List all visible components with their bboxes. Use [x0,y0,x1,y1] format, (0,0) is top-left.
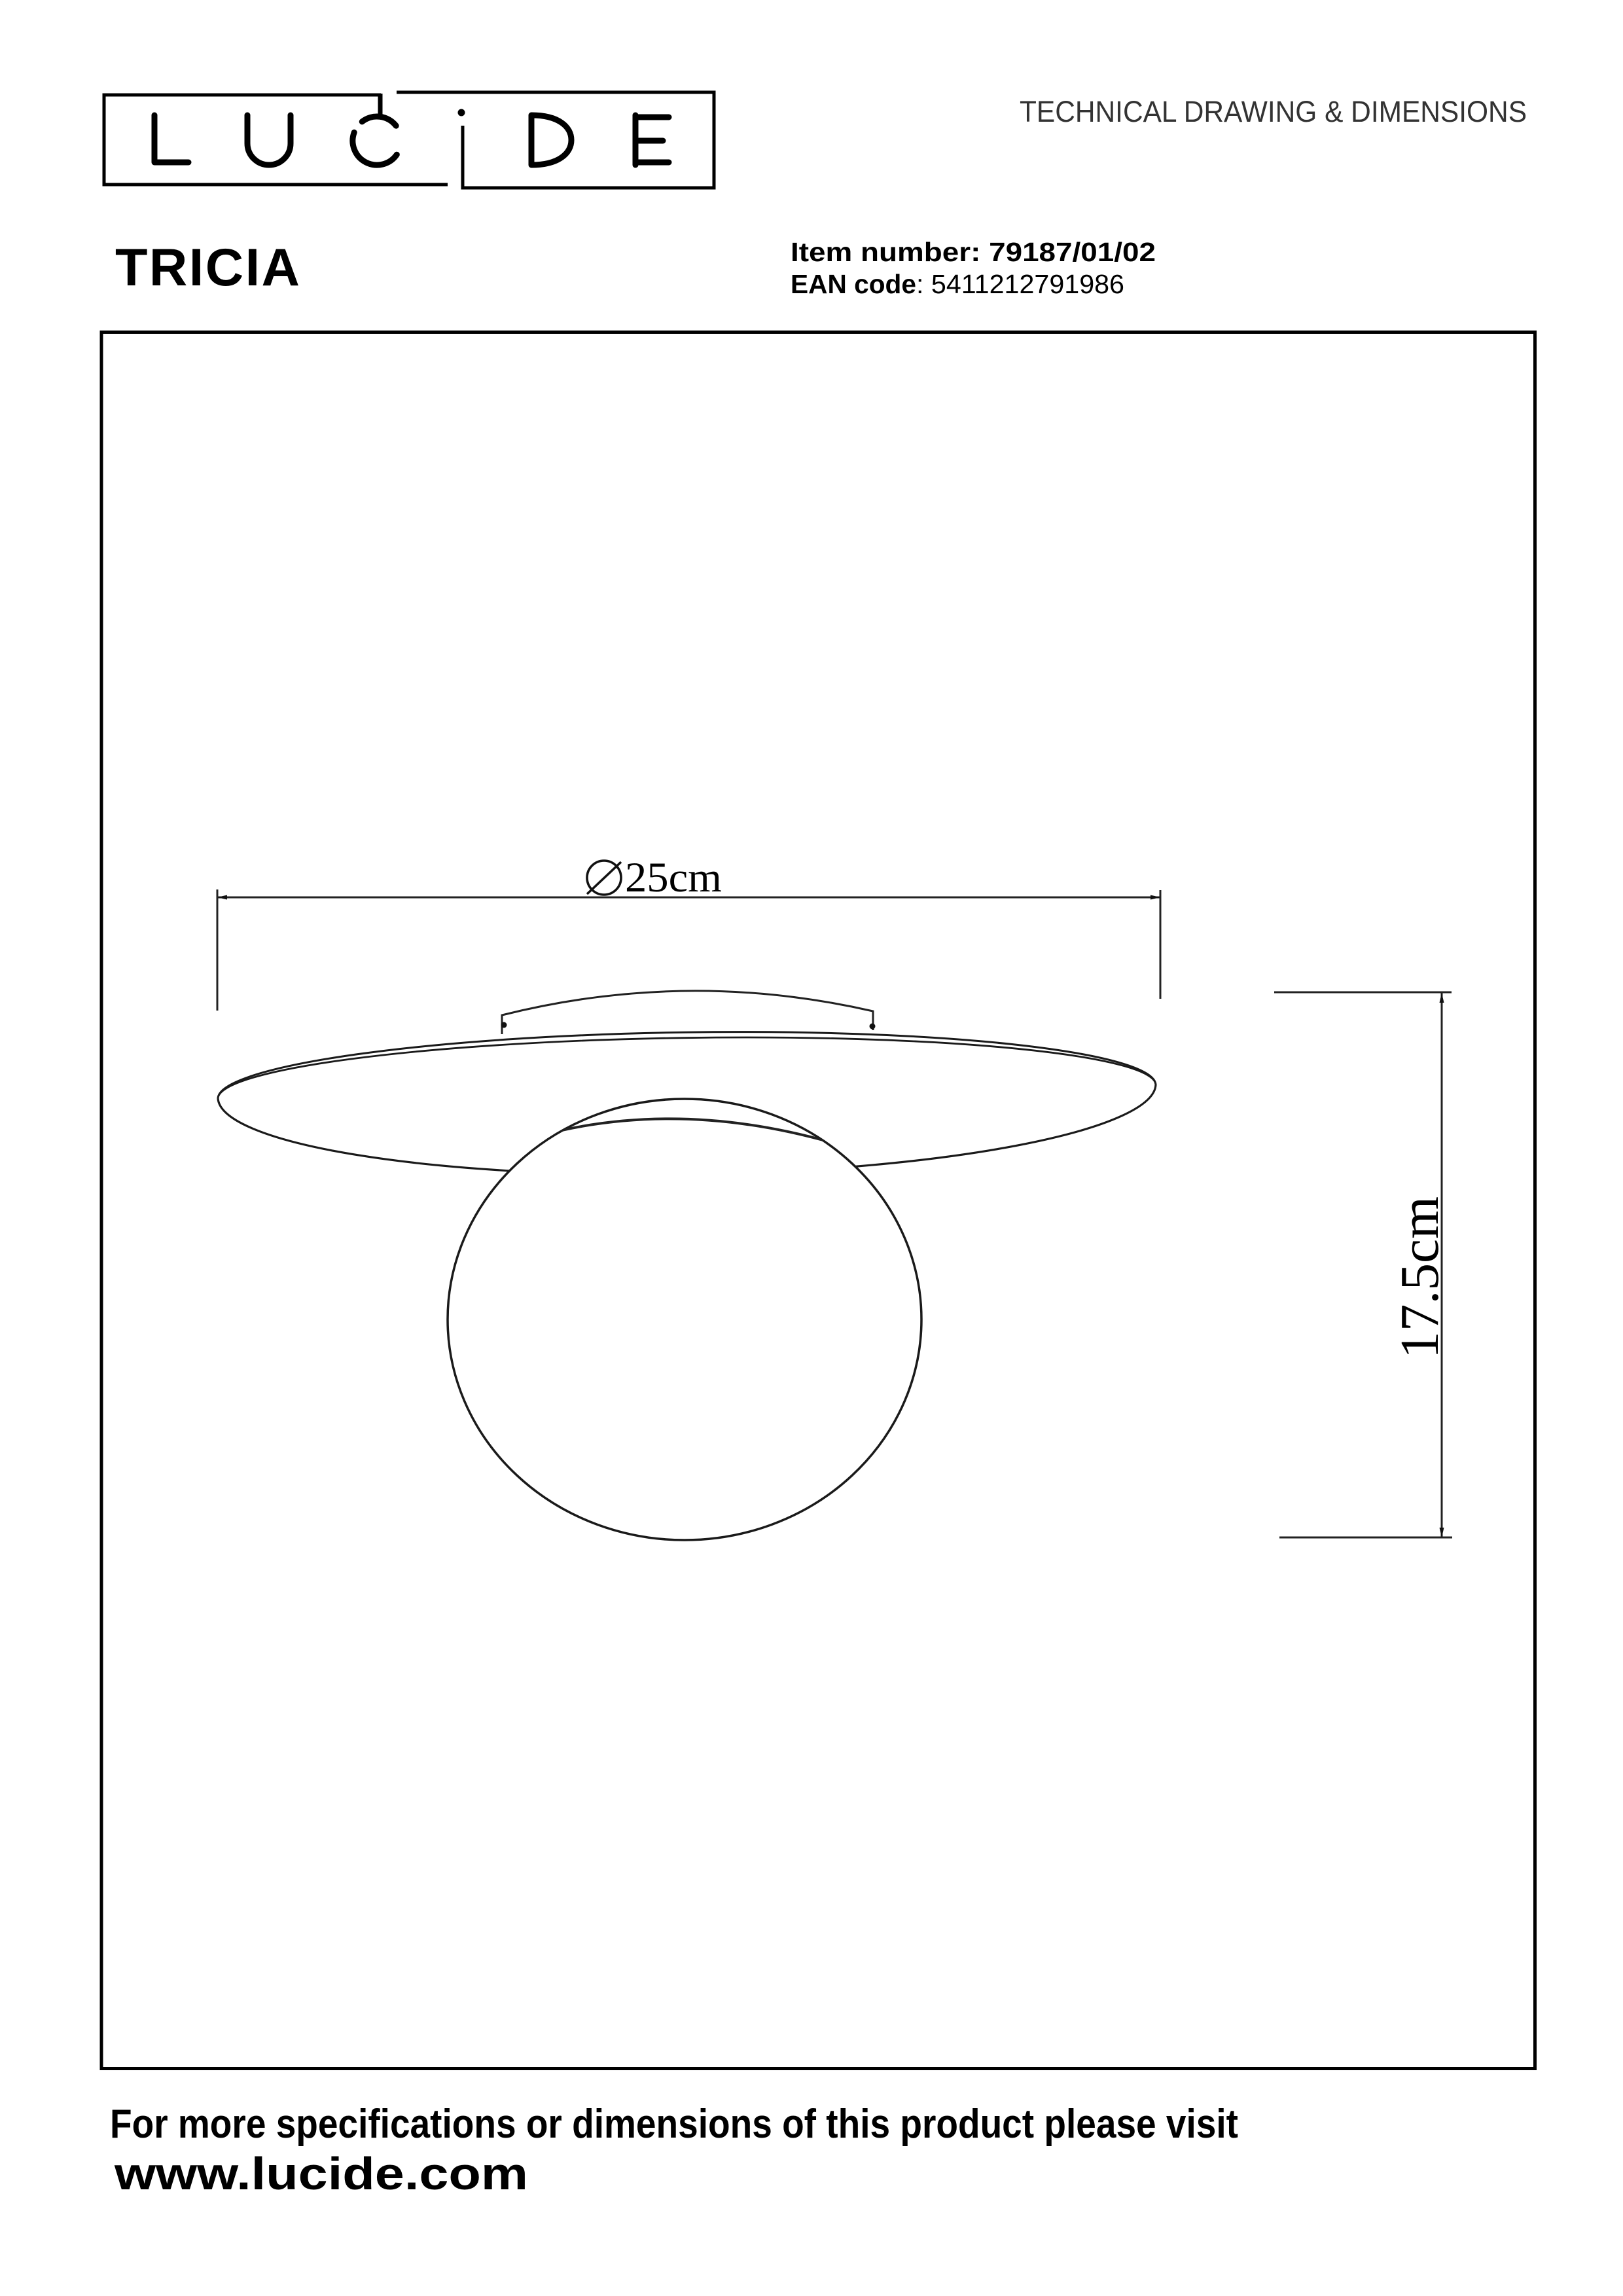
svg-text:www.lucide.com: www.lucide.com [114,2148,528,2199]
svg-text:Item number: 79187/01/02: Item number: 79187/01/02 [791,237,1156,267]
svg-text:TECHNICAL DRAWING & DIMENSIONS: TECHNICAL DRAWING & DIMENSIONS [1020,95,1527,128]
svg-text:EAN code: EAN code [791,269,916,299]
svg-text:17.5cm: 17.5cm [1389,1196,1450,1359]
svg-text:For more specifications or dim: For more specifications or dimensions of… [110,2102,1238,2147]
svg-text:25cm: 25cm [625,854,722,901]
svg-text:: 5411212791986: : 5411212791986 [916,269,1124,299]
svg-text:TRICIA: TRICIA [115,238,300,297]
